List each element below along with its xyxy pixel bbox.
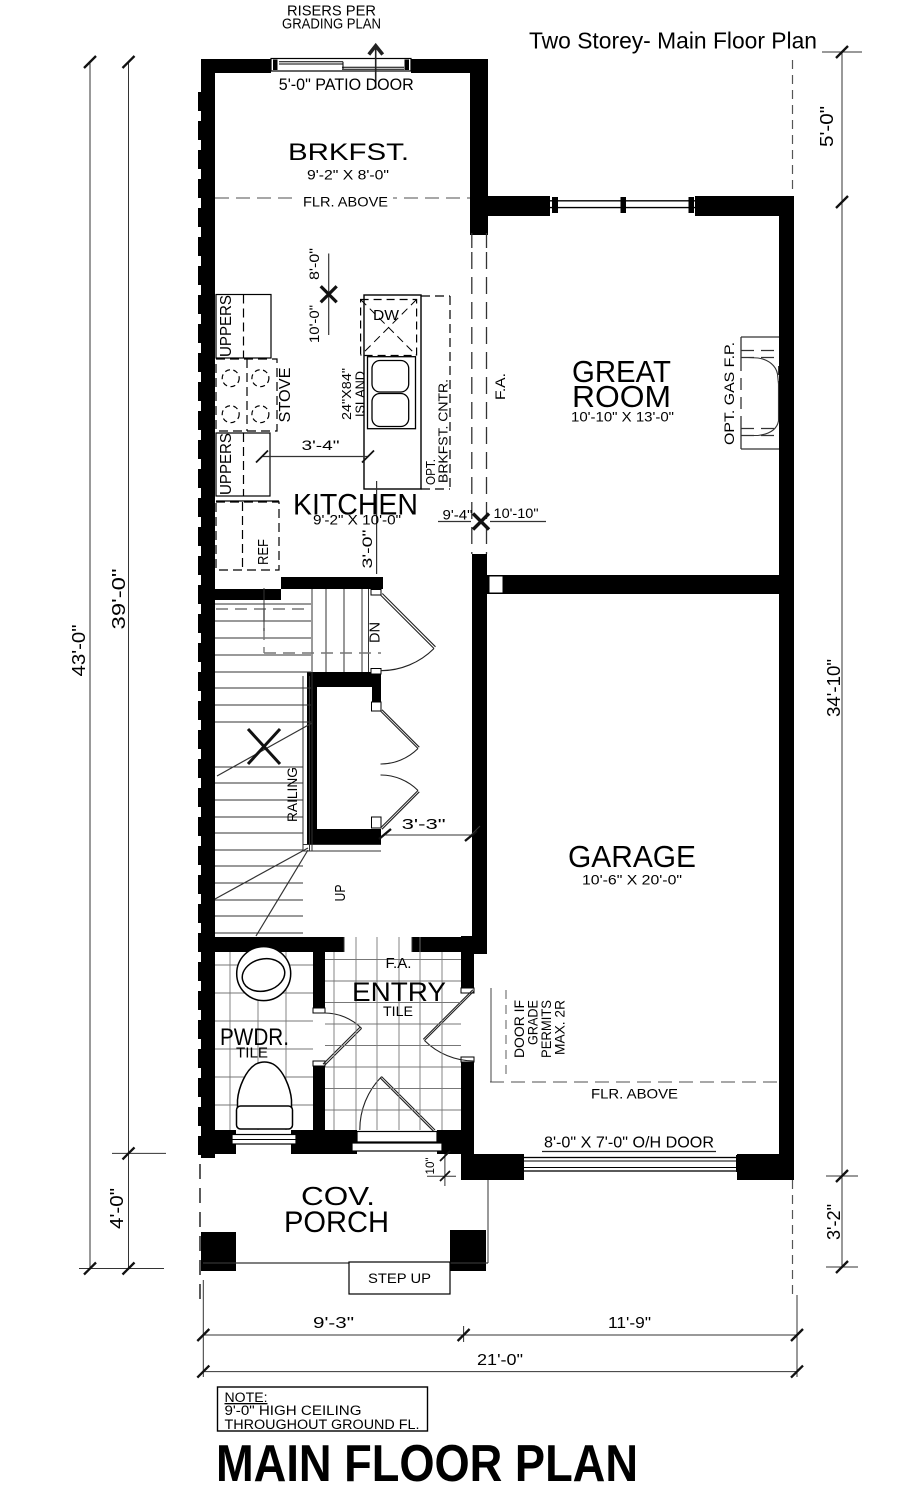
svg-text:TILE: TILE	[236, 1046, 268, 1062]
svg-text:10": 10"	[423, 1158, 437, 1175]
svg-text:FLR. ABOVE: FLR. ABOVE	[303, 194, 388, 210]
svg-text:STOVE: STOVE	[277, 368, 294, 423]
svg-text:DW: DW	[373, 307, 400, 324]
svg-text:DN: DN	[367, 622, 384, 643]
svg-text:GARAGE: GARAGE	[568, 839, 696, 874]
svg-text:9'-3": 9'-3"	[313, 1315, 354, 1332]
svg-text:5'-0": 5'-0"	[817, 106, 837, 147]
svg-text:11'-9": 11'-9"	[608, 1315, 651, 1332]
svg-text:5'-0" PATIO DOOR: 5'-0" PATIO DOOR	[279, 75, 414, 94]
svg-text:4'-0": 4'-0"	[107, 1188, 127, 1229]
svg-text:OPT. GAS F.P.: OPT. GAS F.P.	[721, 342, 737, 445]
svg-text:9'-2" X 10'-0": 9'-2" X 10'-0"	[313, 512, 401, 528]
svg-text:UP: UP	[332, 885, 349, 902]
svg-text:THROUGHOUT GROUND FL.: THROUGHOUT GROUND FL.	[225, 1417, 420, 1432]
svg-text:10'-0": 10'-0"	[306, 305, 322, 343]
svg-text:UPPERS: UPPERS	[218, 295, 235, 357]
svg-text:3'-0": 3'-0"	[359, 529, 375, 568]
svg-text:UPPERS: UPPERS	[218, 433, 235, 495]
svg-text:8'-0": 8'-0"	[306, 248, 322, 280]
svg-text:9'-2" X 8'-0": 9'-2" X 8'-0"	[307, 167, 389, 183]
svg-text:F.A.: F.A.	[386, 955, 412, 972]
svg-text:Two Storey- Main Floor Plan: Two Storey- Main Floor Plan	[529, 28, 817, 54]
svg-text:8'-0" X 7'-0" O/H DOOR: 8'-0" X 7'-0" O/H DOOR	[544, 1135, 714, 1152]
svg-text:REF: REF	[255, 539, 272, 565]
svg-text:21'-0": 21'-0"	[477, 1352, 523, 1369]
svg-text:10'-10": 10'-10"	[494, 505, 539, 521]
svg-text:10'-10" X 13'-0": 10'-10" X 13'-0"	[571, 409, 674, 425]
svg-text:3'-4": 3'-4"	[302, 437, 340, 453]
svg-text:BRKFST.: BRKFST.	[288, 139, 409, 166]
svg-text:BRKFST. CNTR.: BRKFST. CNTR.	[436, 379, 451, 483]
svg-text:F.A.: F.A.	[492, 373, 508, 400]
svg-text:GRADING PLAN: GRADING PLAN	[282, 16, 381, 33]
svg-text:9'-0" HIGH CEILING: 9'-0" HIGH CEILING	[225, 1403, 362, 1418]
svg-text:9'-4": 9'-4"	[443, 507, 473, 523]
svg-text:TILE: TILE	[383, 1003, 413, 1019]
svg-text:34'-10": 34'-10"	[824, 659, 844, 717]
svg-text:3'-2": 3'-2"	[824, 1204, 844, 1240]
svg-text:39'-0": 39'-0"	[109, 569, 129, 630]
svg-text:FLR. ABOVE: FLR. ABOVE	[591, 1086, 678, 1102]
svg-text:MAIN FLOOR PLAN: MAIN FLOOR PLAN	[216, 1435, 638, 1486]
svg-text:10'-6" X 20'-0": 10'-6" X 20'-0"	[582, 872, 682, 888]
svg-text:STEP UP: STEP UP	[368, 1270, 431, 1286]
svg-text:3'-3": 3'-3"	[402, 816, 446, 833]
svg-text:RAILING: RAILING	[284, 767, 300, 822]
svg-text:PORCH: PORCH	[284, 1206, 389, 1239]
svg-text:MAX. 2R: MAX. 2R	[553, 1000, 568, 1055]
svg-text:ISLAND: ISLAND	[353, 371, 368, 417]
svg-text:43'-0": 43'-0"	[69, 625, 89, 677]
